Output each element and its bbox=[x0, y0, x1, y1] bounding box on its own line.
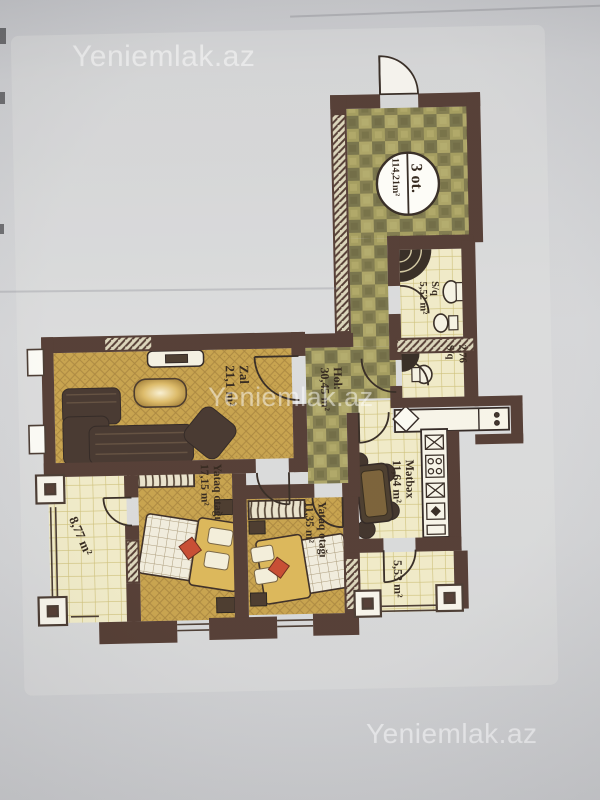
photo-speck bbox=[0, 28, 6, 44]
hall-connector-floor bbox=[349, 238, 389, 347]
badge-area: 114,21m² bbox=[389, 158, 401, 197]
tv bbox=[165, 354, 187, 362]
nightstand bbox=[217, 597, 235, 612]
nightstand bbox=[250, 593, 266, 606]
watermark-middle: Yeniemlak.az bbox=[208, 382, 374, 413]
photo-background: Yeniemlak.az bbox=[0, 0, 600, 800]
apartment-badge: 3 ot. 114,21m² bbox=[376, 152, 439, 215]
watermark-bottom: Yeniemlak.az bbox=[366, 718, 538, 750]
coffee-table bbox=[134, 378, 187, 407]
nightstand bbox=[249, 521, 265, 534]
label-balcony-right: 5,53 m² bbox=[391, 560, 406, 598]
photo-speck bbox=[0, 92, 5, 104]
badge-title: 3 ot. bbox=[407, 163, 425, 193]
toilet bbox=[434, 314, 448, 332]
floor-plan: 3 ot. 114,21m² Zal21,1 m² Hol:30,45 m² Y… bbox=[11, 25, 559, 696]
photo-speck bbox=[0, 224, 4, 234]
label-kitchen: Mətbəx11,64 m² bbox=[390, 460, 418, 504]
